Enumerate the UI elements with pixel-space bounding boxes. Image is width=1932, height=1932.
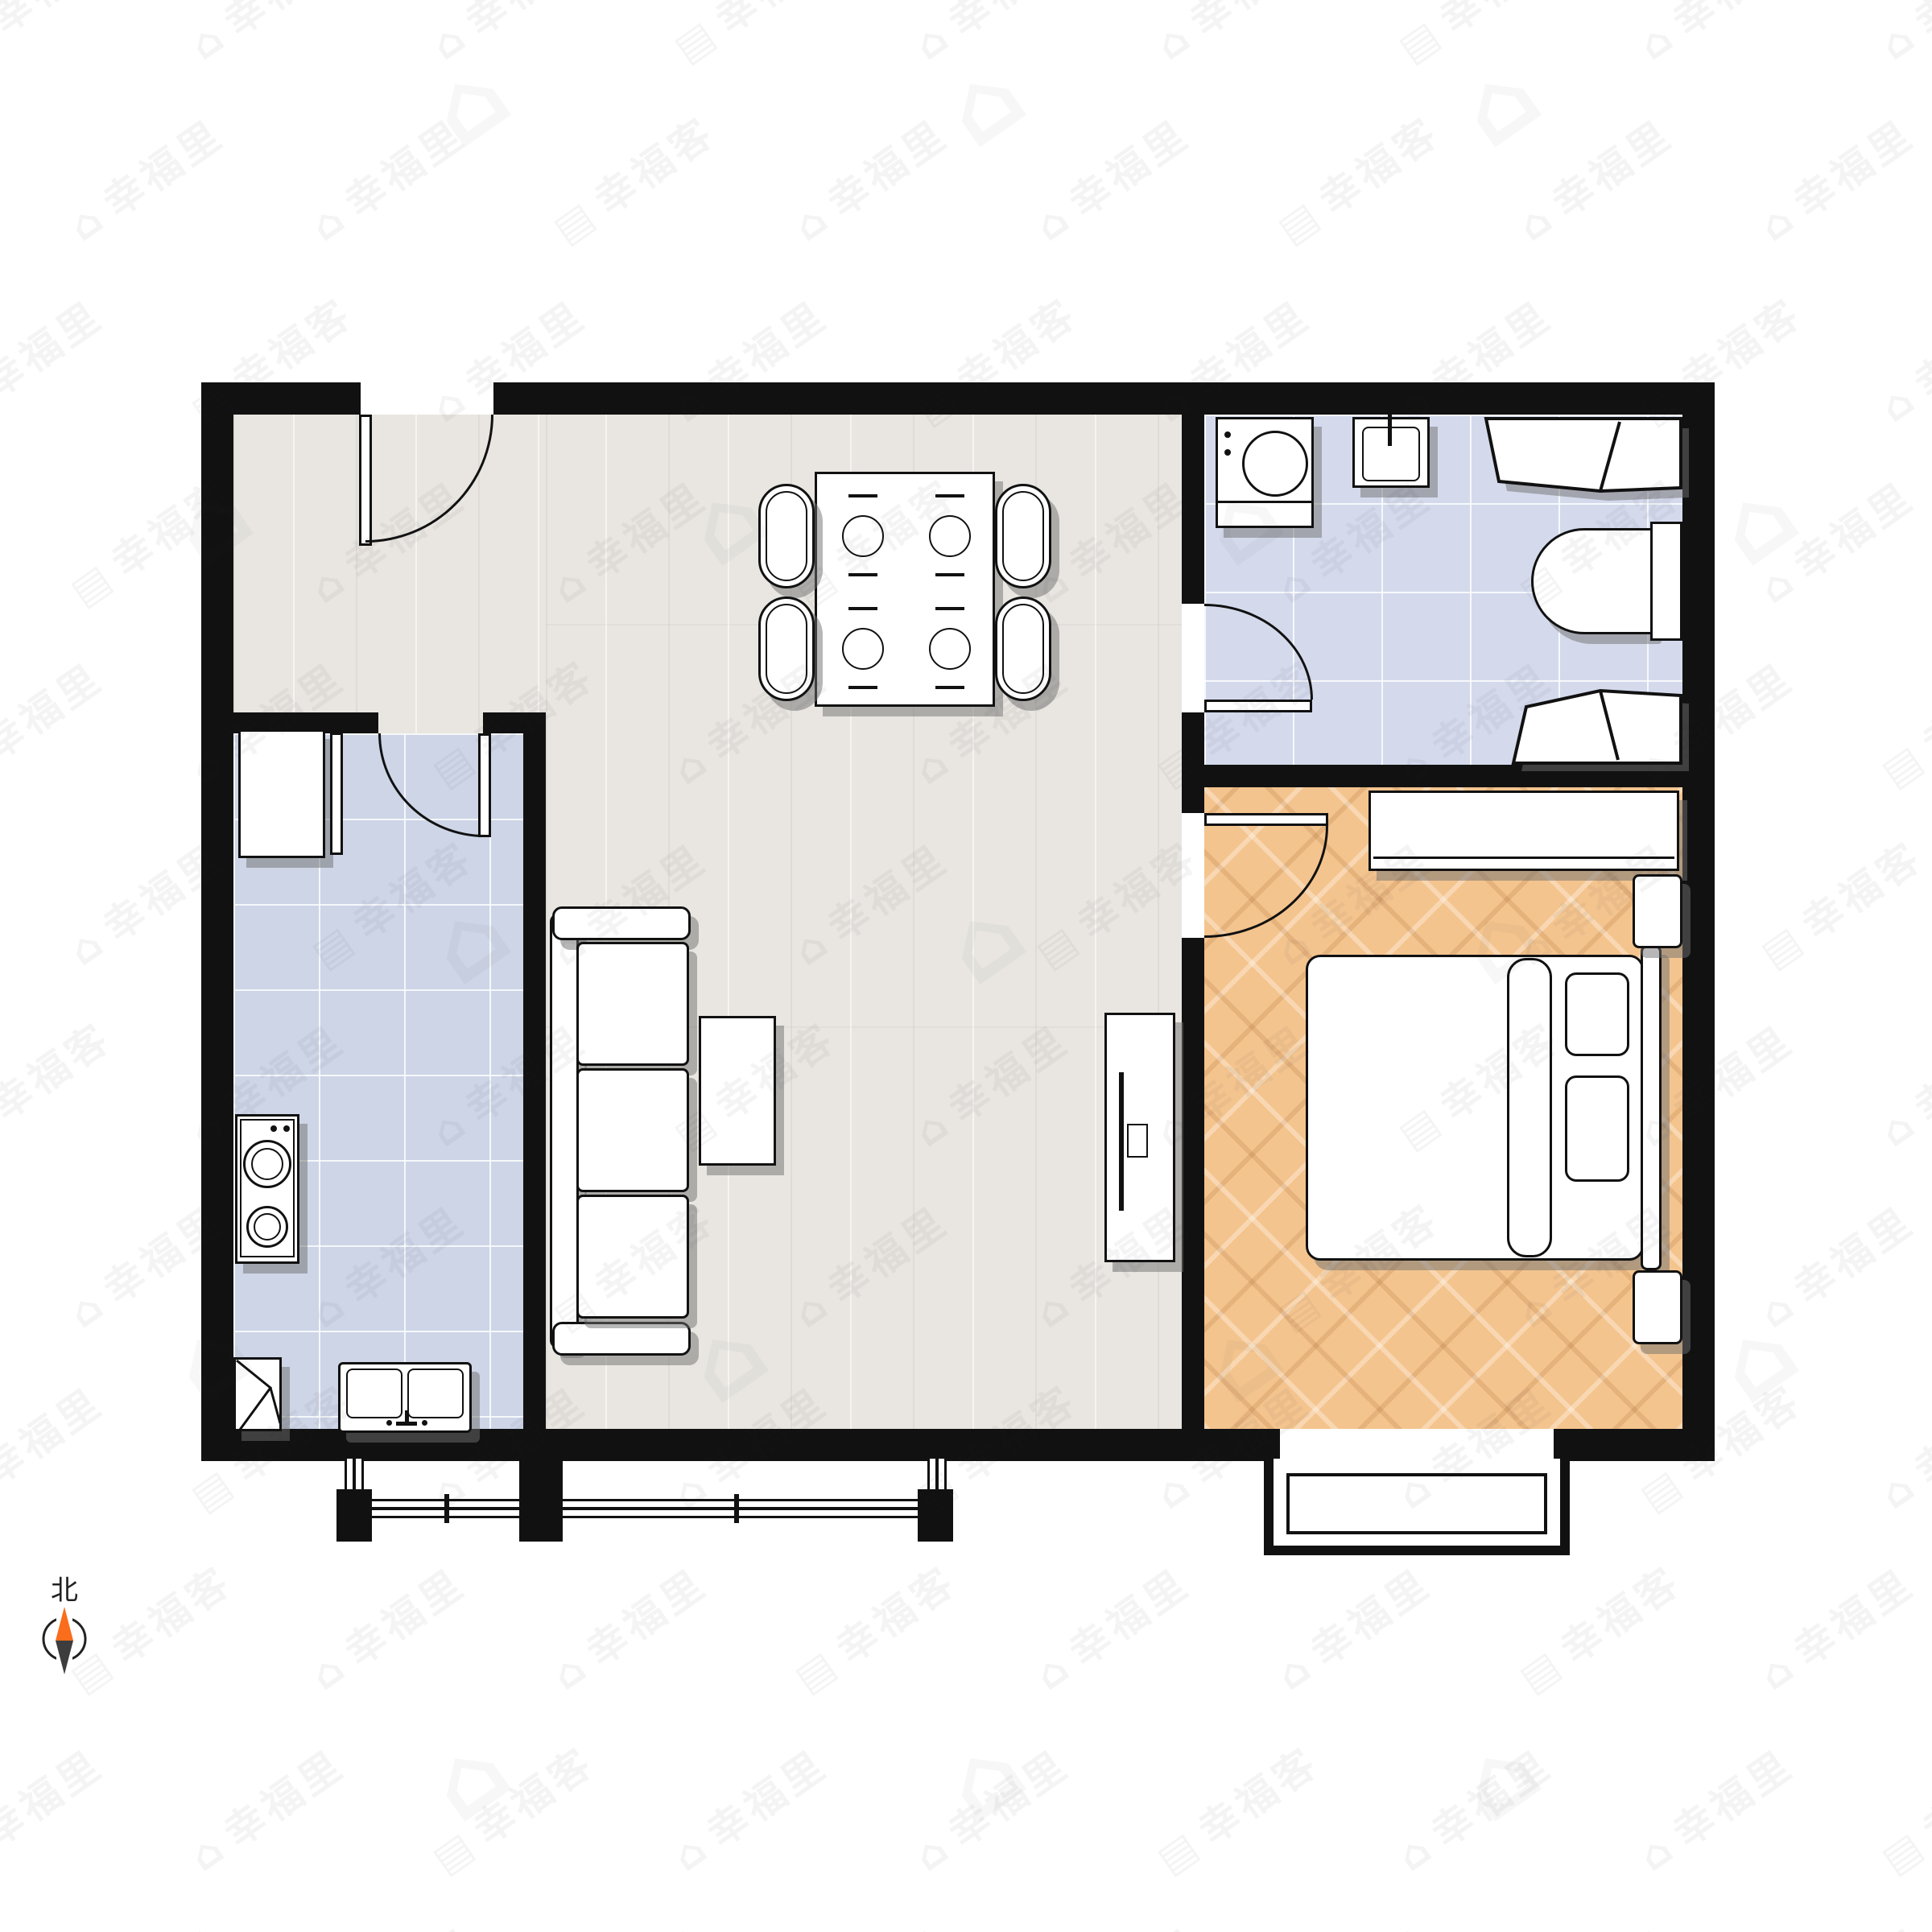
watermark-text: 幸福客: [1794, 1919, 1931, 1932]
sofa-cushion: [576, 1195, 689, 1319]
watermark-house-icon-large: ⌂: [0, 39, 14, 170]
watermark-book-icon: ▤: [1390, 9, 1452, 72]
basin-tap: [1388, 407, 1392, 446]
watermark-house-icon: ⌂: [61, 193, 116, 250]
watermark-text: 幸福客: [1914, 651, 1932, 767]
floor-plan-page: 北 ▤幸福客⌂幸福里⌂幸福里▤幸福客⌂幸福里⌂幸福里▤幸福客⌂幸福里⌂幸福里⌂幸…: [0, 0, 1932, 1932]
watermark-text: 幸福客: [586, 108, 724, 224]
watermark-text: 幸福里: [578, 1922, 716, 1932]
sink-knob: [422, 1420, 427, 1426]
watermark-house-icon: ⌂: [1510, 193, 1565, 250]
watermark-text: 幸福里: [1423, 1740, 1561, 1856]
plate: [842, 515, 884, 557]
watermark-house-icon-large: ⌂: [924, 1713, 1045, 1844]
sink-basin-right: [407, 1368, 464, 1418]
watermark-book-icon: ▤: [424, 1820, 486, 1883]
watermark-text: 幸福客: [1190, 1738, 1327, 1854]
sofa-armrest-bottom: [552, 1322, 691, 1356]
watermark-house-icon-large: ⌂: [1697, 1294, 1818, 1426]
watermark-text: 幸福里: [1061, 110, 1199, 226]
watermark-house-icon: ⌂: [1027, 1642, 1082, 1699]
watermark-book-icon: ▤: [1149, 1820, 1211, 1883]
wall-bottom-left: [201, 1429, 1280, 1461]
bay-stub-right-window: [927, 1459, 947, 1491]
watermark-text: 幸福里: [336, 1559, 474, 1675]
cutlery-tick: [848, 686, 877, 689]
cutlery-tick: [848, 607, 877, 610]
watermark-house-icon: ⌂: [544, 1642, 599, 1699]
bay-stub-left-window: [345, 1459, 364, 1491]
watermark-text: 幸福里: [1665, 1740, 1802, 1856]
watermark-brand-primary: ⌂幸福里: [780, 1914, 958, 1932]
watermark-brand-secondary: ▤幸福客: [1868, 644, 1932, 799]
watermark-text: 幸福里: [1182, 0, 1319, 45]
watermark-house-icon: ⌂: [1872, 374, 1927, 431]
watermark-brand-secondary: ▤幸福客: [1868, 1731, 1932, 1885]
watermark-text: 幸福里: [0, 1740, 112, 1856]
watermark-house-icon: ⌂: [1752, 1642, 1806, 1699]
watermark-text: 幸福里: [1906, 291, 1932, 407]
toilet-bowl: [1531, 528, 1653, 634]
watermark-text: 幸福客: [1431, 0, 1569, 43]
watermark-text: 幸福里: [216, 1740, 353, 1856]
watermark-text: 幸福里: [1665, 0, 1802, 45]
wall-divider-upper: [1182, 415, 1204, 604]
glazing-tick-a: [444, 1494, 449, 1523]
watermark-brand-primary: ⌂幸福里: [1625, 1733, 1803, 1882]
compass-ring-gap-top: [56, 1613, 72, 1623]
watermark-brand-primary: ⌂幸福里: [56, 1914, 233, 1932]
wardrobe: [1368, 791, 1679, 871]
nightstand-top: [1633, 874, 1682, 948]
watermark-brand-primary: ⌂幸福里: [539, 1552, 716, 1701]
watermark-brand-primary: ⌂幸福里: [1625, 0, 1803, 72]
watermark-brand-primary: ⌂幸福里: [1867, 1009, 1932, 1158]
watermark-brand-secondary: ▤幸福客: [0, 0, 122, 74]
watermark-text: 幸福客: [1311, 108, 1448, 224]
sofa-armrest-top: [552, 906, 691, 940]
watermark-brand-primary: ⌂幸福里: [1746, 103, 1924, 252]
watermark-house-icon: ⌂: [303, 1642, 357, 1699]
watermark-book-icon: ▤: [1269, 190, 1331, 253]
fridge-door: [330, 733, 343, 855]
watermark-text: 幸福里: [1906, 0, 1932, 45]
watermark-text: 幸福里: [1061, 1559, 1199, 1675]
watermark-house-icon-large: ⌂: [0, 1713, 14, 1844]
watermark-brand-primary: ⌂幸福里: [1746, 1552, 1924, 1701]
watermark-house-icon: ⌂: [182, 12, 237, 69]
watermark-house-icon: ⌂: [786, 193, 840, 250]
watermark-text: 幸福客: [1794, 832, 1931, 948]
watermark-brand-secondary: ▤幸福客: [1264, 101, 1450, 255]
watermark-house-icon: ⌂: [182, 1823, 237, 1880]
watermark-brand-secondary: ▤幸福客: [1747, 825, 1932, 980]
cutlery-tick: [935, 607, 964, 610]
watermark-text: 幸福里: [336, 110, 474, 226]
watermark-brand-secondary: ▤幸福客: [419, 1731, 605, 1885]
watermark-book-icon: ▤: [0, 9, 2, 72]
watermark-house-icon-large: ⌂: [1439, 1713, 1560, 1844]
watermark-text: 幸福里: [940, 1740, 1078, 1856]
watermark-house-icon: ⌂: [61, 1280, 116, 1337]
watermark-house-icon-large: ⌂: [409, 39, 530, 170]
dining-chair: [995, 484, 1051, 588]
watermark-text: 幸福里: [1785, 473, 1923, 588]
watermark-brand-primary: ⌂幸福里: [0, 646, 114, 795]
watermark-brand-primary: ⌂幸福里: [1022, 1552, 1199, 1701]
watermark-brand-secondary: ▤幸福客: [1505, 1550, 1691, 1704]
pillow: [1565, 972, 1629, 1056]
sofa-cushion: [576, 1068, 689, 1192]
plate: [842, 628, 884, 670]
watermark-house-icon: ⌂: [1027, 193, 1082, 250]
wardrobe-door-line: [1373, 857, 1674, 859]
watermark-book-icon: ▤: [1873, 1820, 1932, 1883]
watermark-brand-secondary: ▤幸福客: [660, 0, 846, 74]
stove-knob: [270, 1125, 277, 1132]
bedroom-door-leaf: [1204, 813, 1328, 826]
fridge: [238, 729, 325, 858]
sofa-back: [550, 914, 579, 1348]
watermark-brand-secondary: ▤幸福客: [1022, 1912, 1208, 1932]
wall-bottom-right: [1554, 1429, 1715, 1461]
watermark-house-icon-large: ⌂: [1439, 39, 1560, 170]
watermark-brand-primary: ⌂幸福里: [1867, 0, 1932, 72]
watermark-text: 幸福里: [1785, 1197, 1923, 1313]
watermark-text: 幸福里: [0, 1378, 112, 1494]
compass-ring: [43, 1618, 85, 1660]
toilet-tank: [1650, 522, 1682, 641]
plate: [929, 515, 971, 557]
compass-ring-gap-bottom: [56, 1655, 72, 1665]
watermark-brand-primary: ⌂幸福里: [1142, 0, 1320, 72]
watermark-brand-secondary: ▤幸福客: [1385, 0, 1571, 74]
sink-faucet-stem: [405, 1410, 409, 1423]
watermark-text: 幸福客: [345, 1919, 482, 1932]
cutlery-tick: [935, 573, 964, 576]
watermark-text: 幸福客: [0, 0, 120, 43]
watermark-brand-primary: ⌂幸福里: [901, 0, 1079, 72]
watermark-house-icon: ⌂: [423, 12, 478, 69]
watermark-brand-primary: ⌂幸福里: [1746, 465, 1924, 614]
watermark-book-icon: ▤: [0, 1096, 2, 1158]
watermark-text: 幸福里: [1544, 1922, 1682, 1932]
watermark-brand-primary: ⌂幸福里: [0, 1733, 114, 1882]
watermark-house-icon: ⌂: [665, 1823, 720, 1880]
watermark-brand-primary: ⌂幸福里: [176, 0, 354, 72]
wall-divider-lower: [1182, 938, 1204, 1429]
cutlery-tick: [935, 494, 964, 497]
watermark-text: 幸福客: [1914, 1738, 1932, 1854]
watermark-brand-secondary: ▤幸福客: [1143, 1731, 1329, 1885]
watermark-brand-primary: ⌂幸福里: [1022, 103, 1199, 252]
watermark-house-icon: ⌂: [1752, 193, 1806, 250]
watermark-house-icon: ⌂: [1872, 12, 1927, 69]
stove-burner-large-ring: [251, 1148, 283, 1180]
kitchen-corner-cabinet: [233, 1357, 282, 1431]
watermark-text: 幸福里: [457, 0, 595, 45]
bay-post-mid: [519, 1461, 563, 1542]
washing-machine-drum: [1242, 431, 1308, 497]
compass: [43, 1607, 85, 1674]
watermark-text: 幸福里: [940, 0, 1078, 45]
watermark-brand-primary: ⌂幸福里: [56, 103, 233, 252]
watermark-house-icon: ⌂: [1389, 1823, 1444, 1880]
watermark-house-icon: ⌂: [1269, 1642, 1323, 1699]
watermark-house-icon: ⌂: [1752, 1280, 1806, 1337]
watermark-brand-primary: ⌂幸福里: [1867, 1371, 1932, 1520]
dining-table: [815, 472, 995, 707]
watermark-text: 幸福客: [465, 1738, 603, 1854]
bay-post-left: [336, 1489, 372, 1542]
watermark-text: 幸福里: [699, 1740, 836, 1856]
watermark-text: 幸福里: [819, 1922, 957, 1932]
stove-knob: [283, 1125, 290, 1132]
washer-panel-line: [1217, 501, 1312, 503]
bed-headboard: [1641, 945, 1662, 1270]
watermark-brand-secondary: ▤幸福客: [1747, 1912, 1932, 1932]
plate: [929, 628, 971, 670]
watermark-book-icon: ▤: [1632, 1458, 1694, 1521]
bathroom-door-leaf: [1204, 700, 1312, 712]
watermark-text: 幸福里: [1302, 1922, 1440, 1932]
watermark-brand-primary: ⌂幸福里: [1867, 284, 1932, 433]
watermark-book-icon: ▤: [62, 1639, 124, 1702]
watermark-text: 幸福里: [0, 654, 112, 770]
wall-divider-middle: [1182, 712, 1204, 813]
watermark-brand-primary: ⌂幸福里: [297, 1552, 475, 1701]
watermark-book-icon: ▤: [545, 190, 607, 253]
sink-basin-left: [346, 1368, 402, 1418]
watermark-book-icon: ▤: [183, 1458, 245, 1521]
cutlery-tick: [848, 494, 877, 497]
watermark-house-icon: ⌂: [1752, 555, 1806, 613]
watermark-brand-primary: ⌂幸福里: [1263, 1552, 1441, 1701]
cutlery-tick: [848, 573, 877, 576]
wall-right: [1682, 382, 1715, 1461]
nightstand-bottom: [1633, 1270, 1682, 1344]
bed-duvet-fold: [1507, 958, 1552, 1257]
watermark-text: 幸福里: [578, 1559, 716, 1675]
watermark-brand-primary: ⌂幸福里: [1505, 1914, 1682, 1932]
watermark-book-icon: ▤: [786, 1639, 848, 1702]
wall-kitchen-right: [523, 712, 546, 1429]
watermark-brand-primary: ⌂幸福里: [1505, 103, 1682, 252]
watermark-house-icon-large: ⌂: [409, 1713, 530, 1844]
watermark-brand-primary: ⌂幸福里: [1746, 1190, 1924, 1339]
bedroom-bay-window-glass: [1286, 1473, 1547, 1534]
compass-north-label: 北: [32, 1568, 97, 1608]
watermark-house-icon: ⌂: [1872, 1099, 1927, 1156]
wall-top-main: [493, 382, 1715, 415]
dining-chair: [758, 597, 815, 701]
living-bay-glazing: [563, 1499, 918, 1518]
watermark-house-icon-large: ⌂: [1697, 457, 1818, 588]
compass-needle-north: [56, 1607, 73, 1641]
watermark-house-icon-large: ⌂: [0, 876, 14, 1007]
watermark-house-icon: ⌂: [61, 918, 116, 975]
washer-button: [1224, 449, 1231, 456]
watermark-book-icon: ▤: [62, 552, 124, 615]
watermark-brand-primary: ⌂幸福里: [0, 1371, 114, 1520]
watermark-brand-primary: ⌂幸福里: [539, 1914, 716, 1932]
watermark-house-icon: ⌂: [1631, 12, 1686, 69]
watermark-brand-secondary: ▤幸福客: [298, 1912, 484, 1932]
watermark-text: 幸福里: [1785, 110, 1923, 226]
watermark-house-icon: ⌂: [1631, 1823, 1686, 1880]
watermark-text: 幸福里: [95, 110, 233, 226]
watermark-text: 幸福里: [0, 291, 112, 407]
watermark-house-icon: ⌂: [1148, 1461, 1203, 1518]
watermark-text: 幸福客: [1069, 1919, 1207, 1932]
watermark-book-icon: ▤: [1873, 733, 1932, 796]
bay-post-right: [918, 1489, 953, 1542]
glazing-tick-b: [734, 1494, 739, 1523]
watermark-book-icon: ▤: [1752, 914, 1814, 977]
watermark-house-icon: ⌂: [906, 1823, 961, 1880]
dining-chair: [758, 484, 815, 588]
watermark-house-icon: ⌂: [906, 12, 961, 69]
watermark-house-icon: ⌂: [1872, 1461, 1927, 1518]
tv-screen: [1119, 1072, 1124, 1211]
watermark-brand-primary: ⌂幸福里: [176, 1733, 354, 1882]
wall-left: [201, 382, 233, 1461]
sofa-cushion: [576, 942, 689, 1066]
watermark-brand-secondary: ▤幸福客: [0, 1006, 122, 1161]
watermark-brand-primary: ⌂幸福里: [0, 284, 114, 433]
watermark-house-icon-large: ⌂: [924, 39, 1045, 170]
watermark-brand-primary: ⌂幸福里: [780, 103, 958, 252]
dining-chair: [995, 597, 1051, 701]
watermark-book-icon: ▤: [666, 9, 728, 72]
watermark-text: 幸福客: [828, 1557, 965, 1673]
coffee-table: [699, 1016, 776, 1166]
stove-burner-small-ring: [254, 1213, 281, 1241]
watermark-book-icon: ▤: [1511, 1639, 1573, 1702]
watermark-text: 幸福里: [819, 110, 957, 226]
watermark-text: 幸福客: [707, 0, 844, 43]
watermark-text: 幸福里: [216, 0, 353, 45]
watermark-text: 幸福客: [1552, 1557, 1690, 1673]
watermark-brand-primary: ⌂幸福里: [901, 1733, 1079, 1882]
pillow: [1565, 1075, 1629, 1182]
watermark-text: 幸福里: [1906, 1378, 1932, 1494]
watermark-brand-secondary: ▤幸福客: [781, 1550, 967, 1704]
watermark-brand-primary: ⌂幸福里: [297, 103, 475, 252]
watermark-text: 幸福里: [1544, 110, 1682, 226]
watermark-brand-primary: ⌂幸福里: [659, 1733, 837, 1882]
watermark-brand-primary: ⌂幸福里: [418, 0, 596, 72]
tv-mount: [1127, 1124, 1148, 1158]
watermark-text: 幸福里: [95, 1922, 233, 1932]
sink-knob: [386, 1420, 392, 1426]
watermark-house-icon: ⌂: [1148, 12, 1203, 69]
washer-button: [1224, 431, 1231, 438]
watermark-text: 幸福客: [103, 1557, 241, 1673]
watermark-house-icon: ⌂: [303, 193, 357, 250]
compass-needle-south: [56, 1641, 73, 1674]
watermark-text: 幸福里: [1906, 1016, 1932, 1132]
cutlery-tick: [935, 686, 964, 689]
watermark-brand-secondary: ▤幸福客: [539, 101, 725, 255]
watermark-text: 幸福里: [1785, 1559, 1923, 1675]
wall-bathroom-bottom: [1182, 765, 1682, 787]
watermark-text: 幸福里: [1302, 1559, 1440, 1675]
watermark-brand-primary: ⌂幸福里: [1263, 1914, 1441, 1932]
watermark-brand-primary: ⌂幸福里: [1384, 1733, 1562, 1882]
watermark-text: 幸福客: [0, 1013, 120, 1129]
